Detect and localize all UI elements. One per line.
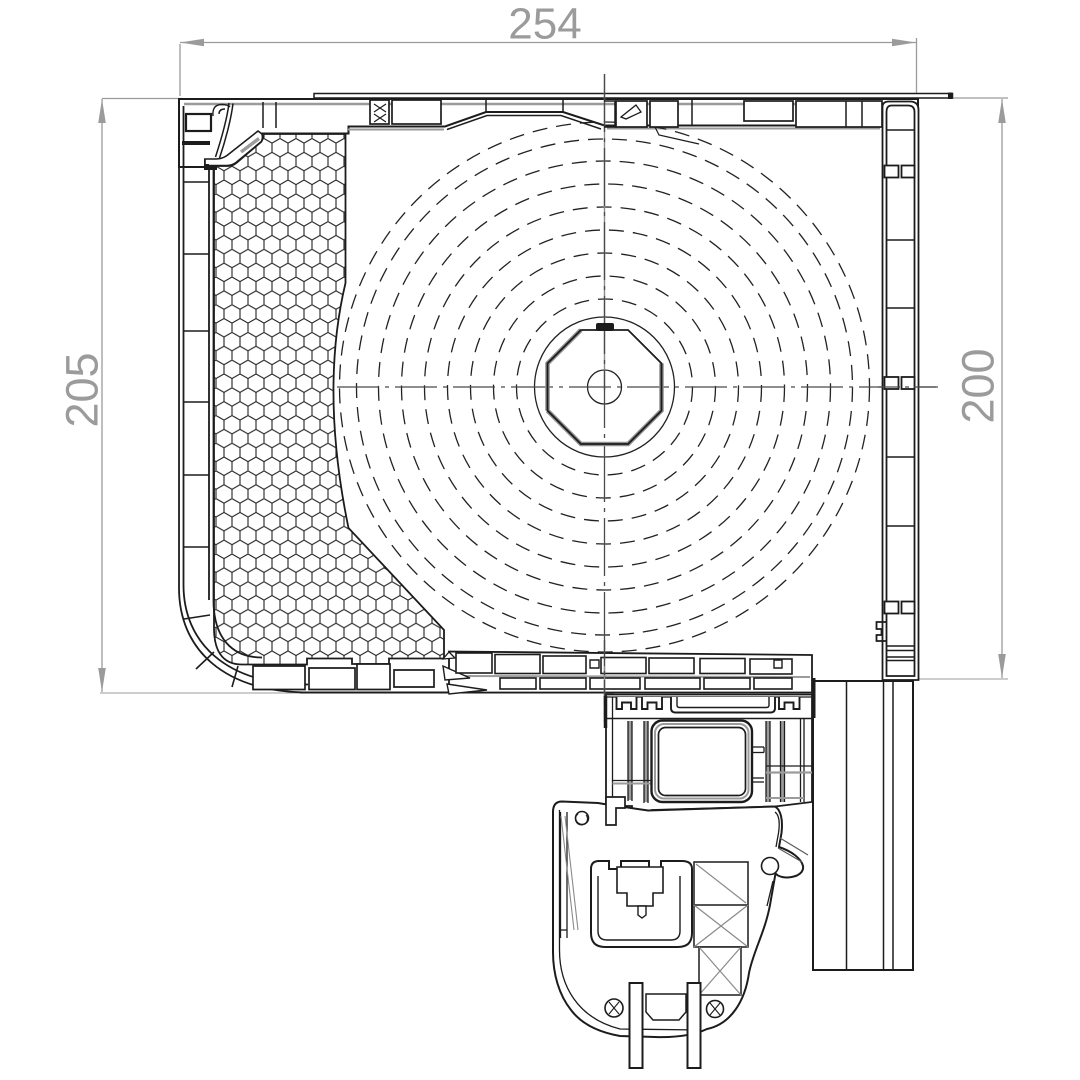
svg-text:200: 200 xyxy=(953,348,1004,423)
svg-text:254: 254 xyxy=(508,0,581,49)
svg-text:205: 205 xyxy=(57,352,108,427)
